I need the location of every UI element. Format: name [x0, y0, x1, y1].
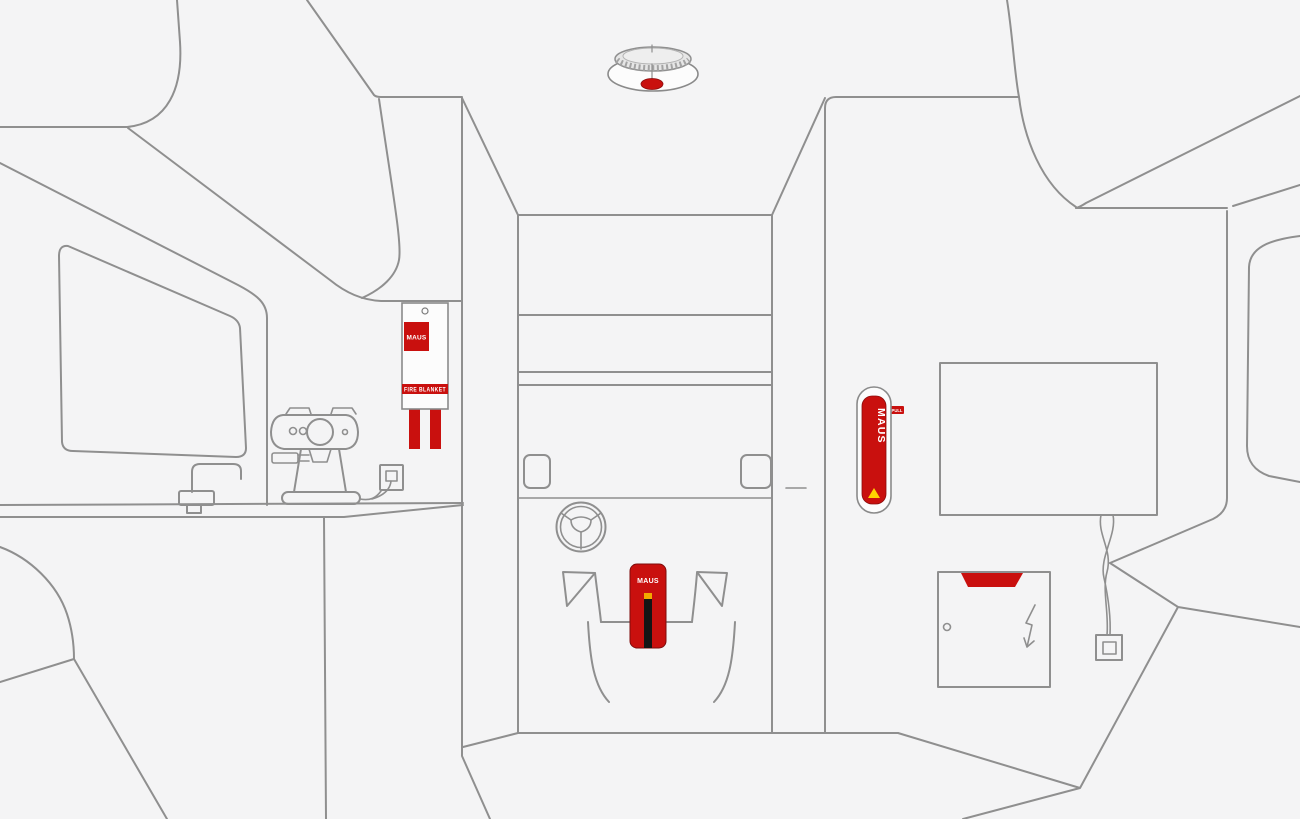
passenger-seat-bolster — [697, 572, 727, 606]
wall-extinguisher-pull-label: PULL — [892, 408, 903, 413]
smoke-alarm-dome-top — [623, 48, 683, 64]
wall-extinguisher[interactable]: PULL MAUS — [857, 387, 904, 513]
tv-cable-1 — [1100, 515, 1108, 635]
fire-blanket-label: FIRE BLANKET — [404, 388, 446, 394]
tv-outline — [940, 363, 1157, 515]
van-interior-illustration: MAUS FIRE BLANKET PULL MAUS MAUS — [0, 0, 1300, 819]
passenger-seat-inner-edge — [692, 573, 697, 622]
electrical-cabinet — [938, 572, 1050, 687]
driver-seat-front — [588, 622, 609, 702]
power-plug — [1096, 635, 1122, 660]
fire-blanket-logo: MAUS — [407, 335, 427, 342]
wheel-hub — [571, 517, 591, 532]
ceiling-left-edge — [307, 0, 462, 97]
right-wall-corner — [1110, 211, 1227, 563]
power-plug-inner — [1103, 642, 1116, 654]
smoke-alarm[interactable] — [608, 45, 698, 91]
faucet-stem — [187, 505, 201, 513]
structure-lines — [0, 0, 1300, 819]
wall-extinguisher-logo: MAUS — [875, 408, 887, 444]
corridor-top-diagonals — [462, 98, 825, 215]
power-outlet — [372, 465, 403, 499]
espresso-light — [343, 430, 348, 435]
tv-cable-2 — [1103, 515, 1113, 635]
fire-blanket-strap-right — [430, 406, 441, 449]
espresso-portafilter-cup — [309, 449, 331, 462]
steering-wheel — [557, 503, 606, 552]
left-wall-upper-diagonal — [128, 128, 462, 301]
passenger-seat-front — [714, 622, 735, 702]
espresso-button-2 — [300, 428, 307, 435]
driver-headrest — [524, 455, 550, 488]
left-overhead-cabinet-edge — [0, 0, 180, 127]
right-cabinet-curve — [1007, 0, 1076, 207]
cabinet-door — [938, 572, 1050, 687]
wardrobe-panel — [1247, 236, 1300, 482]
lightning-bolt-icon — [1024, 605, 1035, 647]
ceiling-right-diagonal — [1076, 96, 1300, 208]
sink-cabinet-outline — [0, 547, 167, 819]
floor-extinguisher-cap — [644, 593, 652, 599]
faucet-spout — [192, 464, 241, 492]
espresso-top-tabs — [286, 408, 356, 414]
espresso-button-1 — [290, 428, 297, 435]
faucet-base — [179, 491, 214, 505]
outlet-plug — [386, 471, 397, 481]
cabinet-knob — [944, 624, 951, 631]
floor-extinguisher-stripe — [644, 593, 652, 648]
espresso-dial — [307, 419, 333, 445]
tv-screen — [940, 363, 1157, 660]
faucet — [179, 464, 241, 513]
fire-blanket-strap-left — [409, 406, 420, 449]
corridor-right-wall — [825, 97, 1019, 733]
driver-seat-inner-edge — [595, 573, 601, 622]
bench-wedge — [898, 563, 1300, 819]
counter-corner-edge — [324, 518, 326, 819]
espresso-machine — [271, 408, 381, 504]
counter-front-edge — [0, 505, 463, 517]
wheel-spokes — [561, 513, 601, 549]
counter-back-edge — [0, 503, 463, 505]
kitchen-window — [59, 246, 246, 457]
fire-blanket[interactable]: MAUS FIRE BLANKET — [402, 303, 448, 449]
floor-extinguisher[interactable]: MAUS — [630, 564, 666, 648]
driver-seat-bolster — [563, 572, 595, 606]
ceiling-right-diagonal-2 — [1233, 185, 1300, 206]
left-cabinet-side-edge — [362, 99, 400, 298]
floor-extinguisher-logo: MAUS — [637, 578, 659, 585]
espresso-cord — [360, 491, 381, 500]
outlet-plate — [380, 465, 403, 490]
passenger-headrest — [741, 455, 771, 488]
cab-wall-bands — [518, 215, 772, 385]
espresso-base — [282, 492, 360, 504]
espresso-portafilter-handle — [272, 453, 298, 463]
smoke-alarm-test-button — [641, 79, 663, 90]
cab-pillars — [518, 215, 772, 733]
corridor-left-wall — [462, 98, 518, 819]
cabinet-red-vent — [961, 573, 1023, 587]
